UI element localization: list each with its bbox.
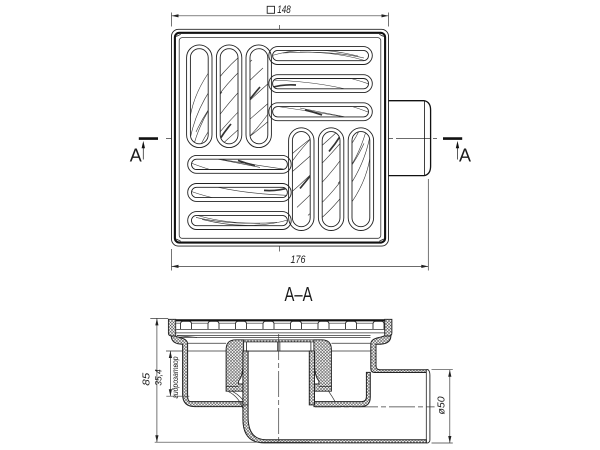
svg-text:A: A: [130, 146, 142, 166]
svg-text:гидрозатвор: гидрозатвор: [171, 356, 180, 398]
svg-text:148: 148: [277, 4, 291, 16]
svg-text:A–A: A–A: [285, 284, 313, 306]
svg-text:85: 85: [141, 373, 153, 386]
svg-text:35,4: 35,4: [154, 369, 165, 386]
svg-text:ø50: ø50: [437, 396, 448, 414]
svg-text:176: 176: [291, 254, 307, 266]
svg-text:A: A: [459, 146, 471, 166]
